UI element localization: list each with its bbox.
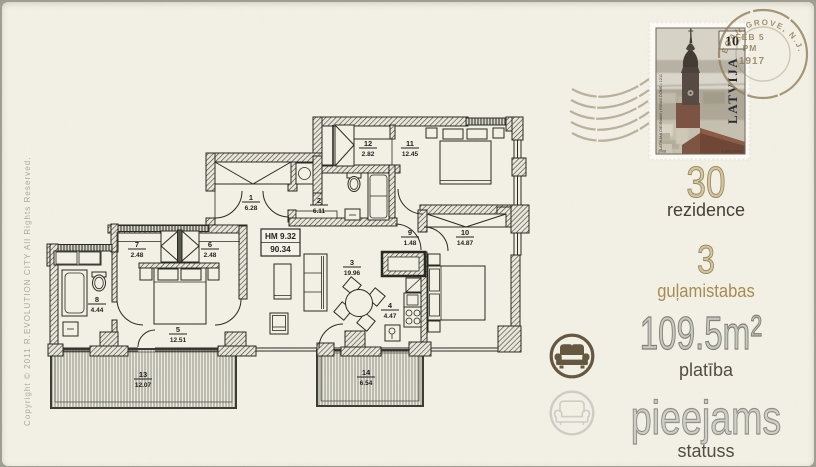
svg-text:90.34: 90.34 xyxy=(270,245,291,254)
svg-text:6.54: 6.54 xyxy=(360,380,373,387)
svg-text:4.47: 4.47 xyxy=(384,313,397,320)
svg-text:1917: 1917 xyxy=(739,56,765,67)
svg-text:7: 7 xyxy=(135,240,139,249)
svg-text:4.44: 4.44 xyxy=(91,307,104,314)
svg-text:12.07: 12.07 xyxy=(135,382,152,389)
svg-text:14.87: 14.87 xyxy=(457,240,474,247)
svg-text:13: 13 xyxy=(139,370,147,379)
svg-text:12.45: 12.45 xyxy=(402,151,419,158)
svg-text:3: 3 xyxy=(350,258,354,267)
svg-text:2.48: 2.48 xyxy=(204,252,217,259)
svg-text:1.48: 1.48 xyxy=(404,240,417,247)
svg-text:2.48: 2.48 xyxy=(131,252,144,259)
svg-text:19.96: 19.96 xyxy=(344,270,361,277)
svg-text:6.11: 6.11 xyxy=(313,208,326,215)
svg-text:G.SKILTERS: G.SKILTERS xyxy=(721,150,743,154)
svg-text:2008: 2008 xyxy=(658,150,666,154)
svg-text:5: 5 xyxy=(176,325,180,334)
svg-text:2.82: 2.82 xyxy=(362,151,375,158)
svg-text:FEB 5: FEB 5 xyxy=(735,32,764,42)
svg-text:2: 2 xyxy=(317,196,321,205)
svg-text:12: 12 xyxy=(364,139,372,148)
svg-text:6: 6 xyxy=(208,240,212,249)
svg-text:14: 14 xyxy=(362,368,371,377)
svg-text:10: 10 xyxy=(461,228,469,237)
svg-text:8: 8 xyxy=(95,295,99,304)
svg-text:6.28: 6.28 xyxy=(245,205,258,212)
svg-text:HM 9.32: HM 9.32 xyxy=(265,232,296,241)
svg-text:PM: PM xyxy=(743,43,758,53)
svg-text:9: 9 xyxy=(408,228,412,237)
svg-text:4: 4 xyxy=(388,301,393,310)
svg-text:12.51: 12.51 xyxy=(170,337,187,344)
svg-text:LATVIJAS DIEVNAMI • RIGAS DOMS: LATVIJAS DIEVNAMI • RIGAS DOMS • 1211 xyxy=(659,74,663,150)
svg-text:1: 1 xyxy=(249,193,253,202)
svg-text:11: 11 xyxy=(406,139,414,148)
